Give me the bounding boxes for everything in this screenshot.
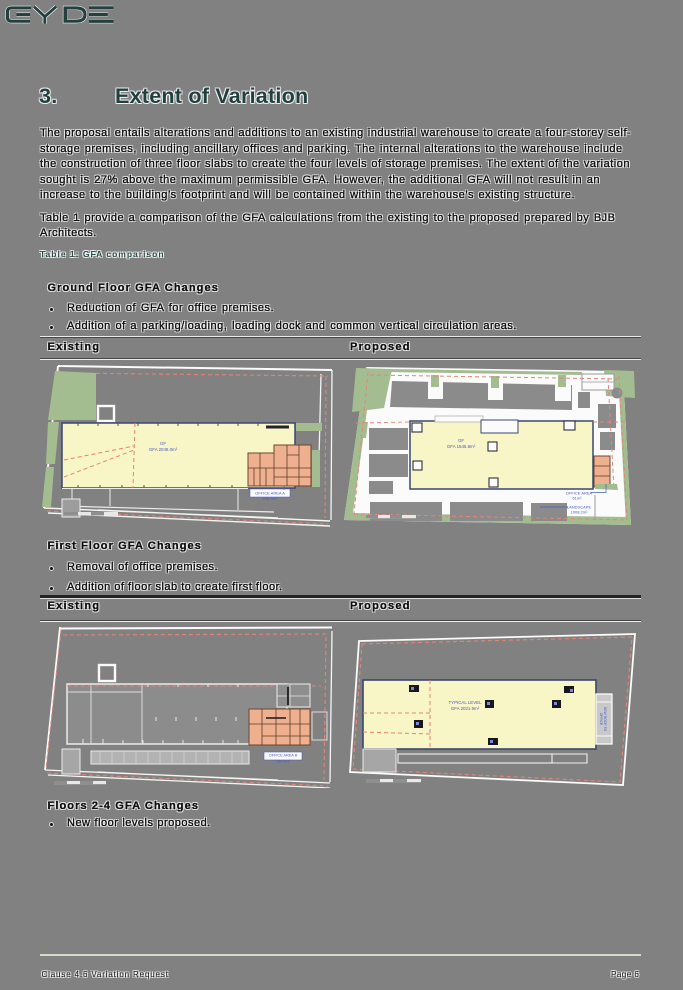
svg-text:GF: GF (160, 441, 166, 446)
svg-text:1008.2m²: 1008.2m² (571, 510, 589, 515)
svg-text:280.4m²: 280.4m² (276, 760, 291, 764)
svg-text:GFA 2021.9m²: GFA 2021.9m² (451, 706, 480, 711)
svg-text:61m²: 61m² (572, 496, 582, 501)
svg-text:TYPICAL LEVEL: TYPICAL LEVEL (448, 700, 482, 705)
svg-text:OFFICE AREA B: OFFICE AREA B (269, 754, 298, 758)
svg-text:OFFICE AREA A: OFFICE AREA A (255, 491, 285, 496)
svg-text:GFA 2048.0m²: GFA 2048.0m² (149, 447, 178, 452)
svg-text:OFFICE: OFFICE (599, 713, 603, 726)
svg-text:246.9m²: 246.9m² (263, 496, 278, 501)
svg-text:GFA 1545.8m²: GFA 1545.8m² (447, 444, 476, 449)
svg-text:GF: GF (458, 438, 464, 443)
